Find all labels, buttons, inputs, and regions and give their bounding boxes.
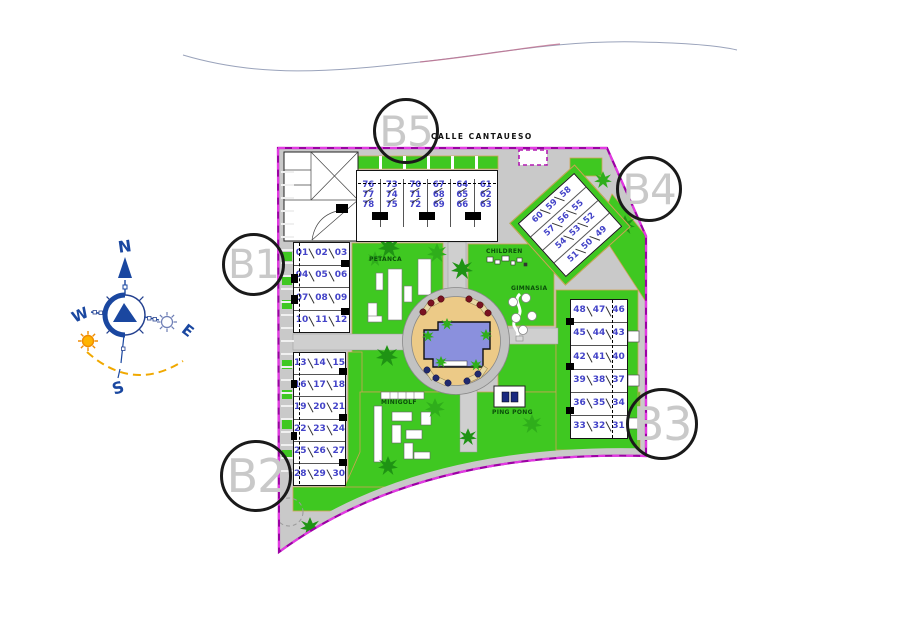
unit-number: 09 xyxy=(335,294,348,304)
unit-number: 18 xyxy=(332,381,345,391)
unit-number: 43 xyxy=(612,329,625,339)
unit-number: 40 xyxy=(612,353,625,363)
unit-divider xyxy=(606,306,612,316)
stairs-icon xyxy=(291,432,297,440)
unit-number: 30 xyxy=(332,470,345,480)
unit-divider xyxy=(326,359,332,369)
unit-divider xyxy=(606,352,612,362)
unit-number: 44 xyxy=(593,329,606,339)
unit-number: 08 xyxy=(315,294,328,304)
unit-row: 282930 xyxy=(294,463,345,485)
compass-east-label: E xyxy=(178,320,197,340)
section-line xyxy=(299,243,300,332)
ping-pong-table xyxy=(494,386,525,407)
block-b2-units: 131415161718192021222324252627282930 xyxy=(294,353,345,485)
unit-divider xyxy=(586,352,592,362)
unit-divider xyxy=(326,447,332,457)
unit-row: 161718 xyxy=(294,374,345,396)
unit-number: 24 xyxy=(332,425,345,435)
unit-divider xyxy=(586,306,592,316)
marker-b5: B5 xyxy=(373,98,439,164)
unit-divider xyxy=(328,294,334,304)
section-line xyxy=(612,300,613,438)
unit-number: 49 xyxy=(594,225,609,240)
unit-number: 35 xyxy=(593,399,606,409)
block-b5-building: 767778737475707172676869646566616263 xyxy=(356,170,498,242)
unit-divider xyxy=(328,271,334,281)
unit-number: 42 xyxy=(573,353,586,363)
unit-divider xyxy=(606,329,612,339)
unit-divider xyxy=(309,294,315,304)
stairs-icon xyxy=(291,380,297,388)
unit-divider xyxy=(328,249,334,259)
sun-path-arc xyxy=(87,352,183,375)
pool-plaza xyxy=(403,288,510,395)
unit-row: 070809 xyxy=(294,287,349,310)
marker-b4-label: B4 xyxy=(622,165,676,214)
sun-outline-icon xyxy=(157,312,177,332)
unit-divider xyxy=(326,403,332,413)
unit-number: 17 xyxy=(313,381,326,391)
unit-divider xyxy=(586,399,592,409)
unit-number: 46 xyxy=(612,306,625,316)
unit-divider xyxy=(606,376,612,386)
unit-number: 03 xyxy=(335,249,348,259)
unit-number: 12 xyxy=(335,316,348,326)
unit-number: 10 xyxy=(296,316,309,326)
unit-divider xyxy=(328,316,334,326)
unit-row: 192021 xyxy=(294,396,345,418)
unit-number: 06 xyxy=(335,271,348,281)
street-label: CALLE CANTAUESO xyxy=(431,132,533,141)
block-b1-units: 010203040506070809101112 xyxy=(294,243,349,332)
unit-divider xyxy=(326,381,332,391)
entrance-gate xyxy=(519,150,547,165)
plan-canvas: N W E S xyxy=(0,0,904,639)
unit-number: 11 xyxy=(315,316,328,326)
unit-number: 48 xyxy=(573,306,586,316)
unit-number: 38 xyxy=(593,376,606,386)
marker-b4: B4 xyxy=(616,156,682,222)
stairs-icon xyxy=(341,308,349,315)
unit-number: 05 xyxy=(315,271,328,281)
unit-number: 13 xyxy=(294,359,307,369)
unit-row: 454443 xyxy=(571,322,627,345)
pool-steps xyxy=(441,361,467,366)
unit-number: 25 xyxy=(294,447,307,457)
unit-number: 34 xyxy=(612,399,625,409)
north-arrow-icon xyxy=(118,257,132,278)
unit-divider xyxy=(309,271,315,281)
unit-row: 131415 xyxy=(294,353,345,374)
petanca-label: PETANCA xyxy=(369,256,402,263)
unit-number: 14 xyxy=(313,359,326,369)
stairs-icon xyxy=(566,407,574,414)
stairs-icon xyxy=(465,212,481,220)
unit-number: 01 xyxy=(296,249,309,259)
stairs-icon xyxy=(566,318,574,325)
stairs-icon xyxy=(341,260,349,267)
unit-row: 393837 xyxy=(571,369,627,392)
stairs-icon xyxy=(291,295,298,304)
unit-divider xyxy=(606,422,612,432)
unit-number: 36 xyxy=(573,399,586,409)
unit-divider xyxy=(307,447,313,457)
unit-divider xyxy=(326,469,332,479)
unit-number: 32 xyxy=(593,422,606,432)
marker-b2: B2 xyxy=(220,440,292,512)
marker-b5-label: B5 xyxy=(379,107,433,156)
compass-rose: N W E S xyxy=(69,236,198,398)
club-building xyxy=(284,152,358,241)
gimnasia-label: GIMNASIA xyxy=(511,285,547,292)
unit-number: 50 xyxy=(580,237,595,252)
unit-number: 19 xyxy=(294,403,307,413)
children-label: CHILDREN xyxy=(486,248,523,255)
decorative-wave xyxy=(183,42,737,71)
unit-row: 424140 xyxy=(571,345,627,368)
section-line xyxy=(358,183,496,184)
unit-row: 040506 xyxy=(294,265,349,288)
unit-divider xyxy=(326,425,332,435)
unit-row: 484746 xyxy=(571,300,627,322)
minigolf-label: MINIGOLF xyxy=(381,399,417,406)
unit-number: 33 xyxy=(573,422,586,432)
unit-divider xyxy=(307,469,313,479)
unit-divider xyxy=(307,403,313,413)
marker-b2-label: B2 xyxy=(227,449,286,503)
unit-divider xyxy=(307,381,313,391)
unit-number: 27 xyxy=(332,447,345,457)
stairs-icon xyxy=(419,212,435,220)
unit-row: 333231 xyxy=(571,415,627,438)
site-plan: N W E S xyxy=(0,0,904,639)
marker-b1-label: B1 xyxy=(228,242,279,288)
unit-number: 51 xyxy=(566,250,581,265)
unit-number: 31 xyxy=(612,422,625,432)
marker-b3-label: B3 xyxy=(633,397,692,451)
unit-divider xyxy=(309,316,315,326)
unit-row: 363534 xyxy=(571,392,627,415)
unit-row: 252627 xyxy=(294,441,345,463)
stairs-icon xyxy=(291,274,298,283)
unit-number: 02 xyxy=(315,249,328,259)
block-b3-building: 484746454443424140393837363534333231 xyxy=(570,299,628,439)
marker-b1: B1 xyxy=(222,233,285,296)
unit-number: 20 xyxy=(313,403,326,413)
unit-number: 15 xyxy=(332,359,345,369)
unit-number: 28 xyxy=(294,470,307,480)
stairs-icon xyxy=(566,363,574,370)
block-b1-building: 010203040506070809101112 xyxy=(293,242,350,333)
unit-divider xyxy=(307,425,313,435)
unit-number: 37 xyxy=(612,376,625,386)
unit-divider xyxy=(307,359,313,369)
stairs-icon xyxy=(339,459,347,466)
sun-filled-icon xyxy=(78,331,98,351)
unit-number: 23 xyxy=(313,425,326,435)
unit-divider xyxy=(586,376,592,386)
compass-south-label: S xyxy=(110,377,127,399)
compass-west-label: W xyxy=(69,303,92,326)
block-b3-units: 484746454443424140393837363534333231 xyxy=(571,300,627,438)
unit-number: 45 xyxy=(573,329,586,339)
marker-b3: B3 xyxy=(626,388,698,460)
unit-divider xyxy=(309,249,315,259)
unit-number: 41 xyxy=(593,353,606,363)
unit-number: 47 xyxy=(593,306,606,316)
unit-divider xyxy=(606,399,612,409)
stairs-icon xyxy=(339,414,347,421)
unit-number: 26 xyxy=(313,447,326,457)
compass-north-label: N xyxy=(117,236,133,257)
stairs-icon xyxy=(372,212,388,220)
unit-divider xyxy=(586,422,592,432)
unit-number: 21 xyxy=(332,403,345,413)
ping-pong-label: PING PONG xyxy=(492,409,533,416)
unit-number: 29 xyxy=(313,470,326,480)
stairs-icon xyxy=(339,368,347,375)
unit-number: 39 xyxy=(573,376,586,386)
section-line xyxy=(299,353,300,484)
unit-row: 222324 xyxy=(294,419,345,441)
unit-divider xyxy=(586,329,592,339)
